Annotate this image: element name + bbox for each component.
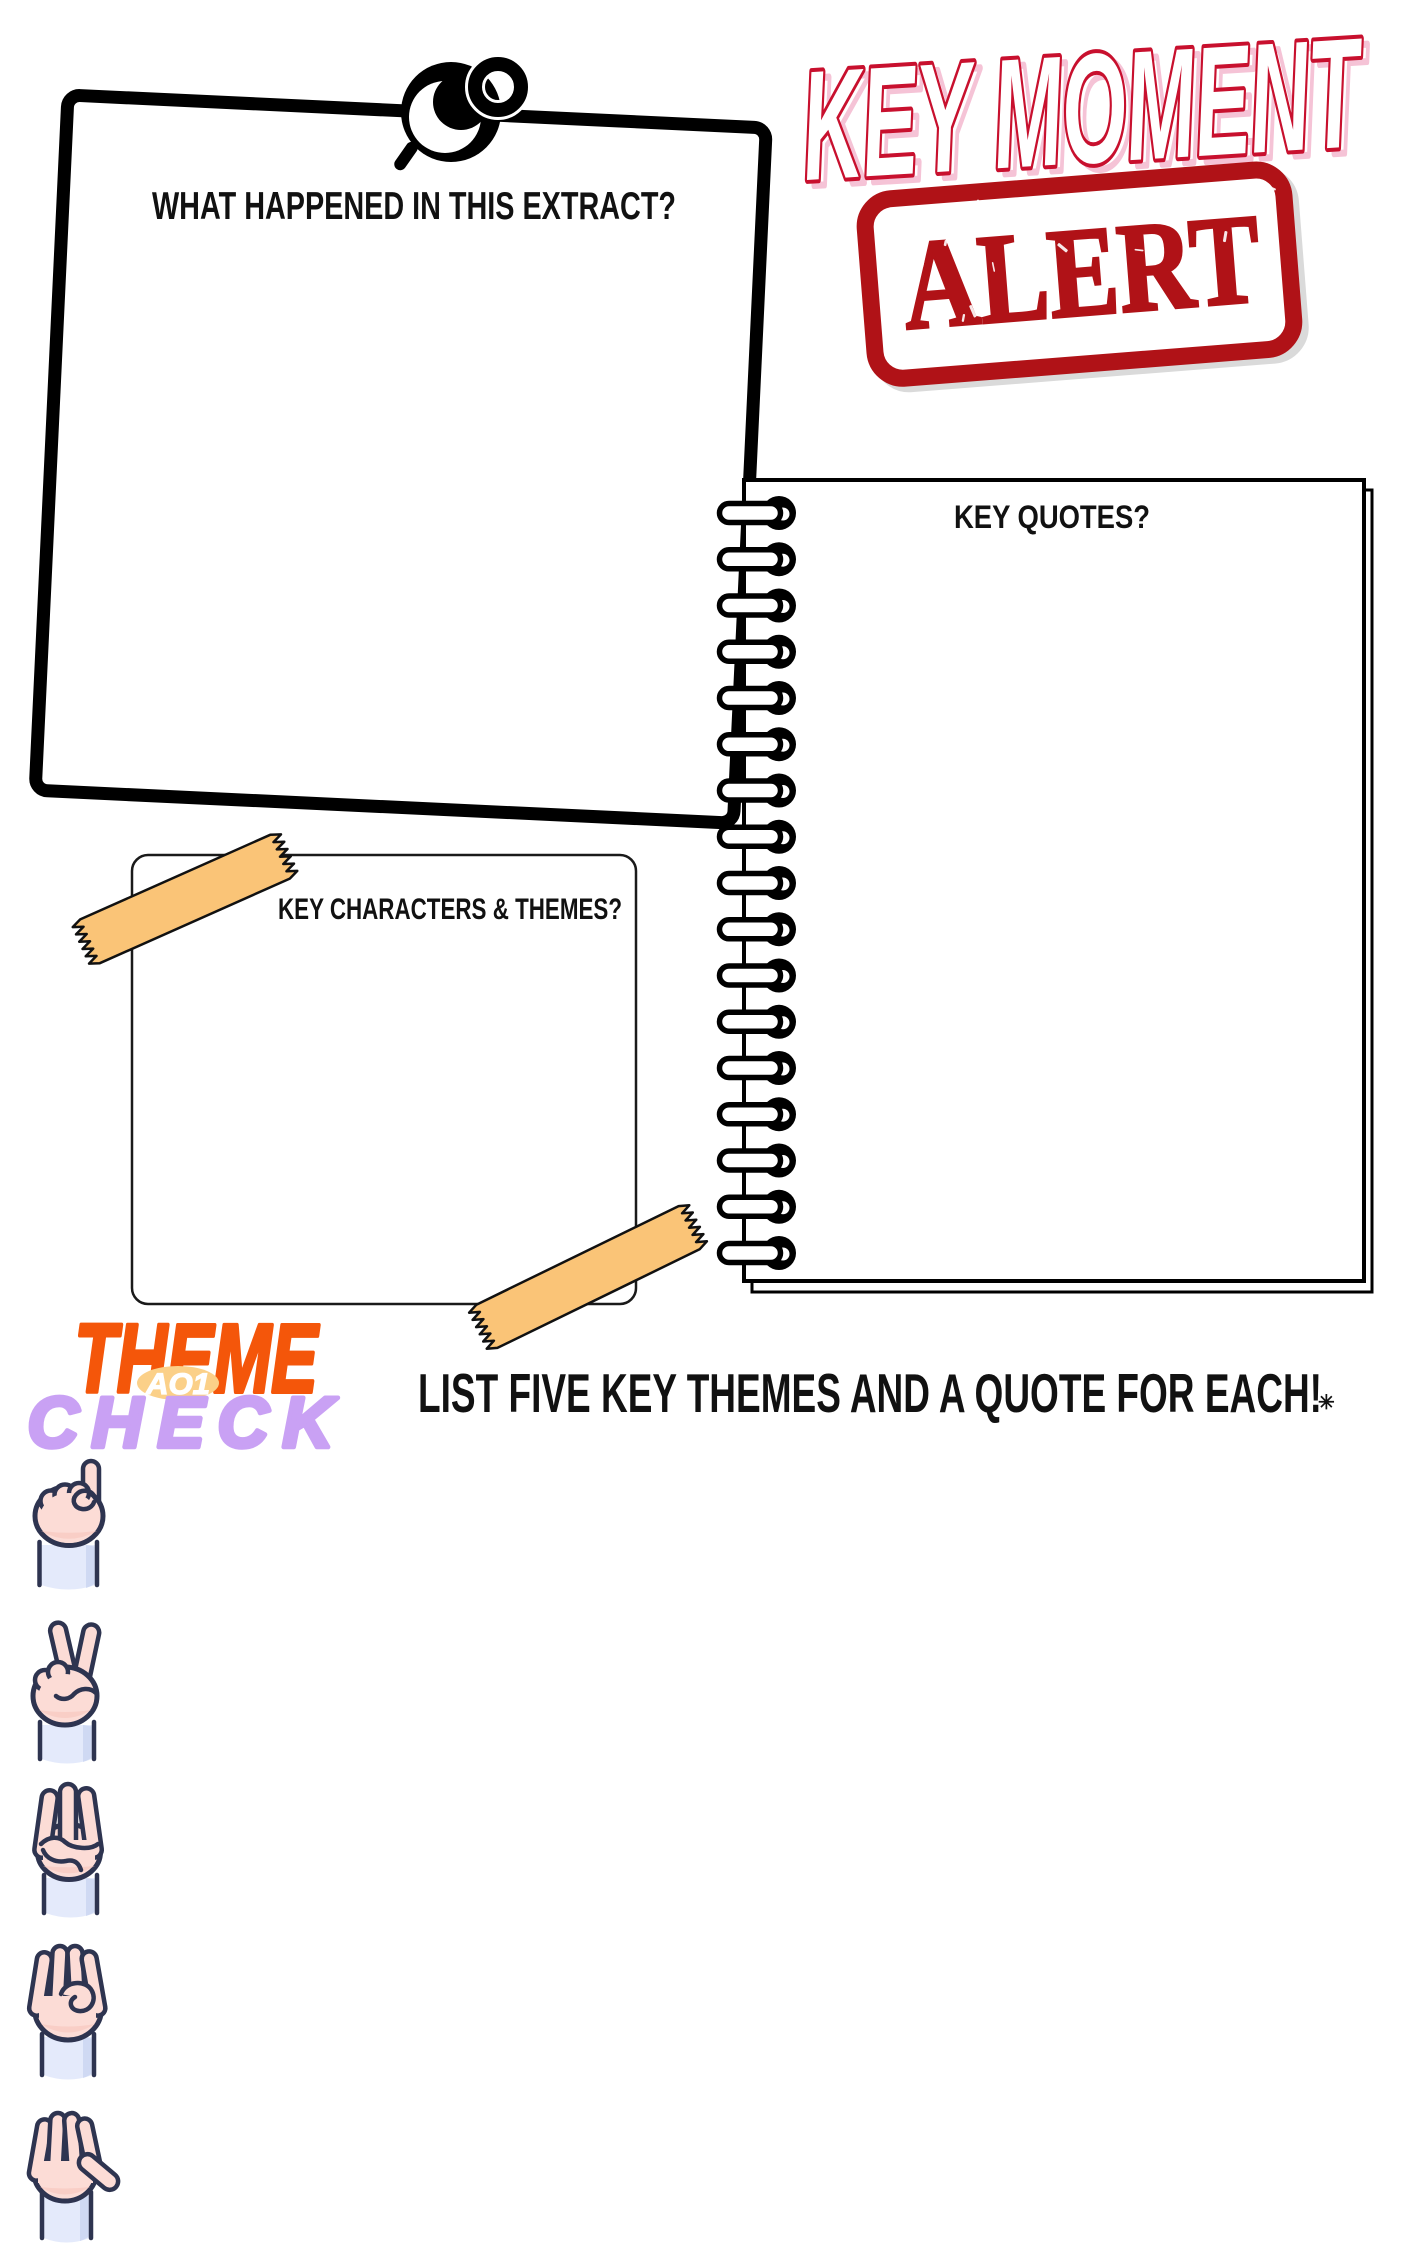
- svg-text:LIST FIVE KEY THEMES AND A QUO: LIST FIVE KEY THEMES AND A QUOTE FOR EAC…: [418, 1362, 1322, 1424]
- svg-text:KEY CHARACTERS & THEMES?: KEY CHARACTERS & THEMES?: [278, 893, 622, 926]
- svg-text:C: C: [217, 1384, 270, 1463]
- svg-text:KEY QUOTES?: KEY QUOTES?: [954, 499, 1150, 535]
- svg-text:ALERT: ALERT: [897, 187, 1265, 357]
- svg-text:K: K: [282, 1384, 338, 1463]
- svg-text:E: E: [157, 1384, 207, 1463]
- svg-text:C: C: [27, 1384, 80, 1463]
- svg-text:✳: ✳: [1318, 1392, 1335, 1414]
- svg-text:H: H: [91, 1384, 144, 1463]
- svg-text:WHAT HAPPENED IN THIS EXTRACT?: WHAT HAPPENED IN THIS EXTRACT?: [152, 185, 676, 228]
